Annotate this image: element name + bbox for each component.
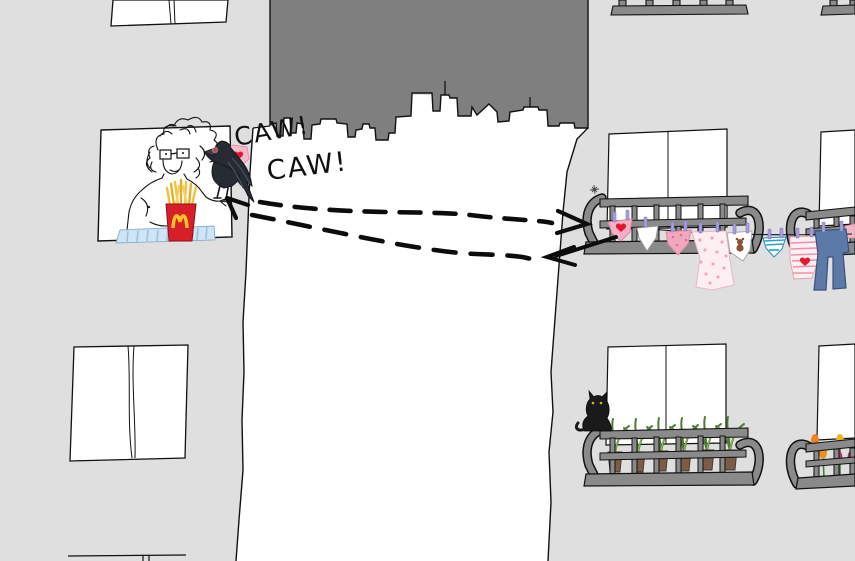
window-lower-right <box>817 344 855 440</box>
window-mid-left <box>70 345 188 461</box>
window-upper-mid <box>607 129 727 229</box>
street-scene: CAW! CAW! <box>0 0 855 561</box>
window-top-left <box>111 0 228 26</box>
fries-box <box>166 204 196 241</box>
red-eye <box>213 148 216 151</box>
mans-window <box>98 117 232 243</box>
laundry-striped-shirt <box>790 236 818 279</box>
